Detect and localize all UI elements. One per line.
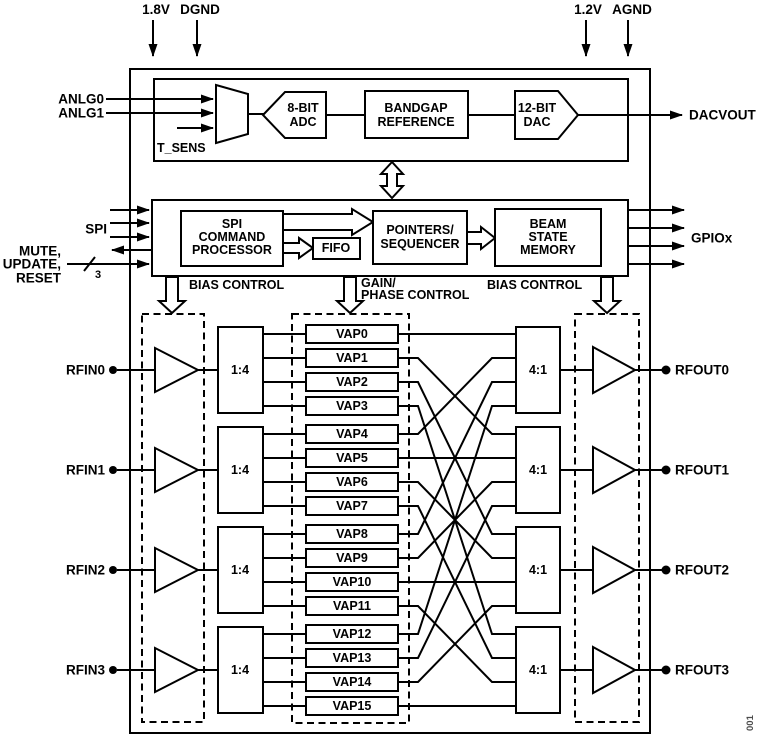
rfout1-pin-dot <box>662 466 671 475</box>
adc-label-line1: 8-BIT <box>287 101 319 115</box>
vap11-label: VAP11 <box>333 599 371 613</box>
splitter-3-label: 1:4 <box>231 663 249 677</box>
pin-1v2-label: 1.2V <box>574 2 602 17</box>
power-pins-top: 1.8V DGND 1.2V AGND <box>142 2 652 56</box>
vap5-label: VAP5 <box>336 451 368 465</box>
rfout3-pin-dot <box>662 666 671 675</box>
bias-control-left-label: BIAS CONTROL <box>189 278 285 292</box>
combiner-1-label: 4:1 <box>529 463 547 477</box>
rfin2-pin-dot <box>109 566 117 574</box>
splitter-1-label: 1:4 <box>231 463 249 477</box>
rfin2-pin-label: RFIN2 <box>66 563 105 578</box>
pointers-label-line1: POINTERS/ <box>386 223 454 237</box>
vap1-label: VAP1 <box>336 351 368 365</box>
vap7-label: VAP7 <box>336 499 368 513</box>
spi-pin-label: SPI <box>85 222 107 237</box>
rfout0-pin-dot <box>662 366 671 375</box>
vap2-label: VAP2 <box>336 375 368 389</box>
tsens-label: T_SENS <box>157 141 206 155</box>
adc-label-line2: ADC <box>289 115 316 129</box>
analog-mux <box>216 85 248 143</box>
vap9-label: VAP9 <box>336 551 368 565</box>
mute-pin-label-line2: UPDATE, <box>3 257 61 272</box>
dacvout-pin-label: DACVOUT <box>689 108 757 123</box>
figure-number-tag: 001 <box>745 714 756 731</box>
beam-memory-label-line3: MEMORY <box>520 243 576 257</box>
rfout1-pin-label: RFOUT1 <box>675 463 729 478</box>
combiner-2-label: 4:1 <box>529 563 547 577</box>
vap13-label: VAP13 <box>333 651 372 665</box>
spi-cp-label-line3: PROCESSOR <box>192 243 272 257</box>
rfin3-pin-dot <box>109 666 117 674</box>
mute-pin-label-line3: RESET <box>16 271 62 286</box>
vap4-label: VAP4 <box>336 427 368 441</box>
vap8-label: VAP8 <box>336 527 368 541</box>
vap6-label: VAP6 <box>336 475 368 489</box>
digital-section: SPI 3 MUTE, UPDATE, RESET SPI COMMAND PR… <box>3 200 733 286</box>
rfin1-pin-dot <box>109 466 117 474</box>
dac-label-line2: DAC <box>523 115 550 129</box>
combiner-0-label: 4:1 <box>529 363 547 377</box>
pin-agnd-label: AGND <box>612 2 652 17</box>
rfout3-pin-label: RFOUT3 <box>675 663 729 678</box>
combiner-3-label: 4:1 <box>529 663 547 677</box>
beam-memory-label-line2: STATE <box>528 230 567 244</box>
diagram-canvas: 1.8V DGND 1.2V AGND ANLG0 ANLG1 T_SENS 8… <box>0 0 760 737</box>
rfout2-pin-dot <box>662 566 671 575</box>
bias-control-right-label: BIAS CONTROL <box>487 278 583 292</box>
pin-dgnd-label: DGND <box>180 2 220 17</box>
bandgap-label-line1: BANDGAP <box>384 101 447 115</box>
functional-block-diagram: 1.8V DGND 1.2V AGND ANLG0 ANLG1 T_SENS 8… <box>0 0 760 737</box>
rfin0-pin-label: RFIN0 <box>66 363 105 378</box>
splitter-2-label: 1:4 <box>231 563 249 577</box>
dac-label-line1: 12-BIT <box>518 101 557 115</box>
analog-section: ANLG0 ANLG1 T_SENS 8-BIT ADC BANDGAP REF… <box>58 79 756 161</box>
vap15-label: VAP15 <box>333 699 372 713</box>
vap10-label: VAP10 <box>333 575 372 589</box>
splitter-0-label: 1:4 <box>231 363 249 377</box>
rfout0-pin-label: RFOUT0 <box>675 363 729 378</box>
gain-phase-label-line2: PHASE CONTROL <box>361 288 470 302</box>
rfout2-pin-label: RFOUT2 <box>675 563 729 578</box>
anlg1-pin-label: ANLG1 <box>58 106 104 121</box>
rfin1-pin-label: RFIN1 <box>66 463 105 478</box>
spi-cp-label-line2: COMMAND <box>199 230 266 244</box>
anlg0-pin-label: ANLG0 <box>58 92 104 107</box>
vap3-label: VAP3 <box>336 399 368 413</box>
pin-1v8-label: 1.8V <box>142 2 170 17</box>
fifo-label: FIFO <box>322 241 351 255</box>
rfin0-pin-dot <box>109 366 117 374</box>
beam-memory-label-line1: BEAM <box>530 217 567 231</box>
rfin3-pin-label: RFIN3 <box>66 663 105 678</box>
gpio-pin-label: GPIOx <box>691 231 733 246</box>
bus-width-label: 3 <box>95 269 101 281</box>
spi-cp-label-line1: SPI <box>222 217 242 231</box>
bandgap-label-line2: REFERENCE <box>377 115 454 129</box>
pointers-label-line2: SEQUENCER <box>380 237 459 251</box>
vap14-label: VAP14 <box>333 675 372 689</box>
vap0-label: VAP0 <box>336 327 368 341</box>
vap12-label: VAP12 <box>333 627 372 641</box>
